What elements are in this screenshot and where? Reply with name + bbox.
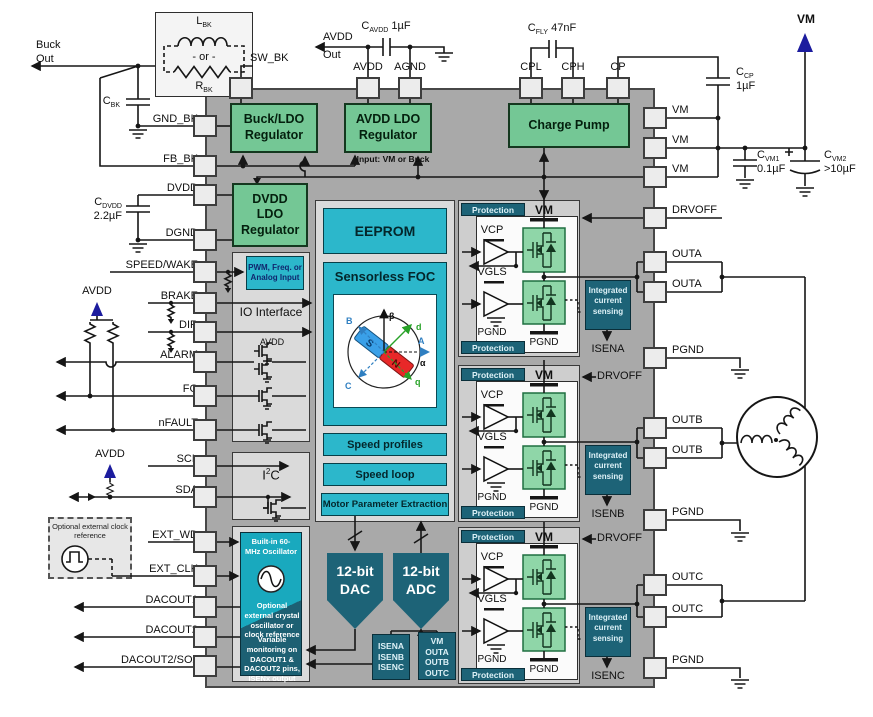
- cbk-label: CBK: [60, 95, 120, 110]
- pin-fg: [193, 385, 217, 407]
- pin-label-pgnd-3: PGND: [672, 654, 704, 667]
- protection-tag: Protection: [461, 341, 525, 354]
- io-interface-label: IO Interface: [234, 306, 308, 320]
- phase-b-vcp-label: VCP: [477, 389, 507, 402]
- phase-c-vgls-label: VGLS: [474, 593, 510, 606]
- charge-pump-block: Charge Pump: [508, 103, 630, 148]
- pin-label-dacout1: DACOUT1: [60, 594, 198, 607]
- svg-text:B: B: [346, 316, 353, 326]
- pin-speed-wake: [193, 261, 217, 283]
- pin-dvdd: [193, 184, 217, 206]
- pin-alarm: [193, 351, 217, 373]
- pin-outc-2: [643, 606, 667, 628]
- oscillator-sine-icon: [255, 563, 289, 597]
- pin-ext-clk: [193, 565, 217, 587]
- avdd-pullup-label: AVDD: [75, 285, 119, 298]
- eeprom-block: EEPROM: [323, 208, 447, 254]
- phase-c-drvoff-label: DRVOFF: [597, 532, 642, 545]
- phase-b-vm-label: VM: [528, 369, 560, 383]
- phase-b-drvoff-label: DRVOFF: [597, 370, 642, 383]
- cvm2-value: >10µF: [824, 163, 856, 176]
- pin-label-pgnd-1: PGND: [672, 344, 704, 357]
- pin-label-fb-bk: FB_BK: [60, 153, 198, 166]
- pin-pgnd-2: [643, 509, 667, 531]
- pin-outa-2: [643, 281, 667, 303]
- phase-a-pgnd-bottom-label: PGND: [527, 337, 561, 349]
- cavdd-label: CAVDD 1µF: [344, 20, 428, 35]
- pwm-input-block: PWM, Freq. or Analog Input: [246, 256, 304, 290]
- avdd-ldo-regulator-block: AVDD LDO Regulator: [344, 103, 432, 153]
- phase-b-pgnd-bottom-label: PGND: [527, 502, 561, 514]
- protection-tag: Protection: [461, 203, 525, 216]
- pin-label-alarm: ALARM: [60, 349, 198, 362]
- protection-tag: Protection: [461, 506, 525, 519]
- pin-label-nfault: nFAULT: [60, 417, 198, 430]
- phase-c-pgnd-left-label: PGND: [474, 654, 510, 666]
- isena-label: ISENA: [583, 343, 633, 356]
- pin-label-outc-2: OUTC: [672, 603, 703, 616]
- oscillator-monitor-note: Variable monitoring on DACOUT1 & DACOUT2…: [243, 635, 301, 684]
- phase-c-pgnd-bottom-label: PGND: [527, 664, 561, 676]
- cvm1-value: 0.1µF: [757, 163, 785, 176]
- pin-label-ext-clk: EXT_CLK: [60, 563, 198, 576]
- pin-dacout2: [193, 626, 217, 648]
- block-diagram-canvas: Optional external clock reference: [0, 0, 873, 717]
- pin-outb-2: [643, 447, 667, 469]
- speed-loop-block: Speed loop: [323, 463, 447, 486]
- pin-label-dir: DIR: [60, 319, 198, 332]
- pin-label-agnd: AGND: [388, 61, 432, 74]
- pin-avdd: [356, 77, 380, 99]
- pin-label-vm-2: VM: [672, 134, 689, 147]
- isenc-label: ISENC: [583, 670, 633, 683]
- pin-label-outc-1: OUTC: [672, 571, 703, 584]
- pin-label-outb-1: OUTB: [672, 414, 703, 427]
- svg-text:β: β: [389, 311, 395, 321]
- pin-label-cpl: CPL: [509, 61, 553, 74]
- svg-text:α: α: [420, 358, 426, 368]
- pin-vm-1: [643, 107, 667, 129]
- phase-b-vgls-label: VGLS: [474, 431, 510, 444]
- pin-label-sw-bk: SW_BK: [250, 52, 289, 65]
- pin-pgnd-3: [643, 657, 667, 679]
- buck-out-label2: Out: [36, 53, 54, 66]
- pin-sw-bk: [229, 77, 253, 99]
- phase-c-vm-label: VM: [528, 531, 560, 545]
- pin-outa-1: [643, 251, 667, 273]
- phase-a-pgnd-left-label: PGND: [474, 327, 510, 339]
- pin-label-avdd: AVDD: [346, 61, 390, 74]
- i2c-label: I2C: [240, 467, 302, 483]
- pin-outc-1: [643, 574, 667, 596]
- avdd-ldo-input-note: Input: VM or Buck: [356, 155, 430, 165]
- pin-pgnd-1: [643, 347, 667, 369]
- isen-mux-box: ISENA ISENB ISENC: [372, 634, 410, 680]
- pin-label-outa-2: OUTA: [672, 278, 702, 291]
- buck-ldo-regulator-block: Buck/LDO Regulator: [230, 103, 318, 153]
- phase-a-vm-label: VM: [528, 204, 560, 218]
- pin-gnd-bk: [193, 115, 217, 137]
- pin-label-outb-2: OUTB: [672, 444, 703, 457]
- ccp-label: CCP: [736, 66, 754, 81]
- pin-dir: [193, 321, 217, 343]
- pin-label-gnd-bk: GND_BK: [60, 113, 198, 126]
- phase-c-vcp-label: VCP: [477, 551, 507, 564]
- pin-label-drvoff: DRVOFF: [672, 204, 717, 217]
- phase-c-current-sense-box: Integrated current sensing: [585, 607, 631, 657]
- cvm1-label: CVM1: [757, 149, 779, 164]
- vm-rail-label: VM: [791, 13, 821, 27]
- foc-rotor-box: S N β α A B C d q: [333, 294, 437, 408]
- sensorless-foc-title: Sensorless FOC: [324, 269, 446, 284]
- foc-rotor-diagram: S N β α A B C d q: [334, 295, 436, 407]
- pin-label-pgnd-2: PGND: [672, 506, 704, 519]
- speed-profiles-block: Speed profiles: [323, 433, 447, 456]
- pin-cpl: [519, 77, 543, 99]
- pin-fb-bk: [193, 155, 217, 177]
- dvdd-ldo-regulator-block: DVDD LDO Regulator: [232, 183, 308, 247]
- pin-label-speed-wake: SPEED/WAKE: [60, 259, 198, 272]
- pin-brake: [193, 292, 217, 314]
- pin-nfault: [193, 419, 217, 441]
- svg-text:A: A: [418, 336, 425, 346]
- pin-label-sda: SDA: [60, 484, 198, 497]
- pin-label-vm-1: VM: [672, 104, 689, 117]
- pin-label-dgnd: DGND: [60, 227, 198, 240]
- isenb-label: ISENB: [583, 508, 633, 521]
- buck-out-label: Buck: [36, 39, 60, 52]
- pin-sda: [193, 486, 217, 508]
- pin-label-fg: FG: [60, 383, 198, 396]
- phase-a-vcp-label: VCP: [477, 224, 507, 237]
- cdvdd-label: CDVDD: [60, 196, 122, 211]
- pin-drvoff: [643, 207, 667, 229]
- pin-ext-wd: [193, 531, 217, 553]
- pin-outb-1: [643, 417, 667, 439]
- pin-label-dacout2: DACOUT2: [60, 624, 198, 637]
- pin-agnd: [398, 77, 422, 99]
- cvm2-label: CVM2: [824, 149, 846, 164]
- svg-text:d: d: [416, 322, 422, 332]
- protection-tag: Protection: [461, 668, 525, 681]
- pin-cp: [606, 77, 630, 99]
- oscillator-title: Built-in 60-MHz Oscillator: [241, 533, 301, 557]
- cdvdd-value: 2.2µF: [60, 210, 122, 223]
- protection-tag: Protection: [461, 368, 525, 381]
- pin-scl: [193, 455, 217, 477]
- motor-parameter-extraction-block: Motor Parameter Extraction: [321, 493, 449, 516]
- io-avdd-label: AVDD: [252, 337, 292, 347]
- lbk-or-label: - or -: [165, 51, 243, 64]
- pin-label-dvdd: DVDD: [60, 182, 198, 195]
- lbk-label: LBK: [165, 15, 243, 30]
- oscillator-block: Built-in 60-MHz Oscillator Optional exte…: [240, 532, 302, 676]
- avdd-out-label2: Out: [323, 49, 341, 62]
- avdd-sda-label: AVDD: [88, 448, 132, 461]
- sensorless-foc-block: Sensorless FOC S N: [323, 262, 447, 426]
- pin-label-vm-3: VM: [672, 163, 689, 176]
- pin-label-cph: CPH: [551, 61, 595, 74]
- phase-a-vgls-label: VGLS: [474, 266, 510, 279]
- vm-mux-box: VM OUTA OUTB OUTC: [418, 632, 456, 680]
- phase-b-pgnd-left-label: PGND: [474, 492, 510, 504]
- pin-dacout1: [193, 596, 217, 618]
- pin-cph: [561, 77, 585, 99]
- pin-label-outa-1: OUTA: [672, 248, 702, 261]
- pin-label-cp: CP: [604, 61, 632, 74]
- pin-dgnd: [193, 229, 217, 251]
- phase-a-current-sense-box: Integrated current sensing: [585, 280, 631, 330]
- pin-label-dacout2-sox: DACOUT2/SOx: [60, 654, 198, 667]
- svg-text:C: C: [345, 381, 352, 391]
- pin-vm-3: [643, 166, 667, 188]
- phase-b-current-sense-box: Integrated current sensing: [585, 445, 631, 495]
- ccp-value: 1µF: [736, 80, 755, 93]
- cfly-label: CFLY 47nF: [510, 22, 594, 37]
- protection-tag: Protection: [461, 530, 525, 543]
- pin-dacout2-sox: [193, 655, 217, 677]
- svg-text:q: q: [415, 377, 421, 387]
- pin-vm-2: [643, 137, 667, 159]
- pin-label-ext-wd: EXT_WD: [60, 529, 198, 542]
